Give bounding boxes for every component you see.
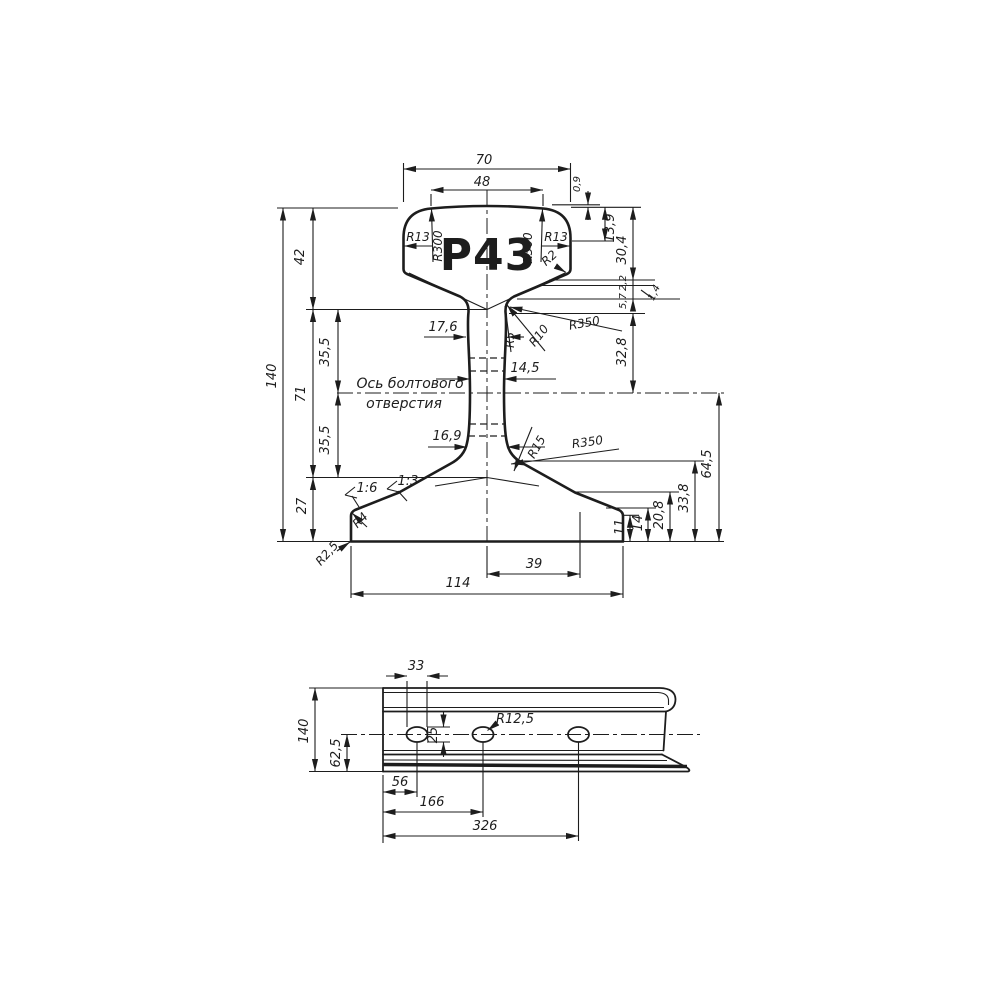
dim-label-33: 33: [408, 659, 425, 674]
bolt-hole-axis-note: Ось болтового отверстия: [356, 376, 463, 412]
dim-label-71: 71: [294, 386, 309, 403]
dim-label-20-8: 20,8: [652, 501, 667, 530]
rail-technical-drawing: 140 42 71 27 35,5 35,5 70 48: [0, 0, 1000, 1000]
radius-label-r350-upper: R350: [568, 313, 602, 332]
dim-label-56: 56: [392, 775, 409, 790]
drawing-sheet: 140 42 71 27 35,5 35,5 70 48: [0, 0, 1000, 1000]
dim-label-30-4: 30,4: [615, 236, 630, 265]
dim-label-114: 114: [446, 576, 471, 591]
dim-label-1-4: 1,4: [646, 283, 663, 302]
dim-label-140-side: 140: [297, 719, 312, 744]
bolt-holes: [341, 727, 700, 742]
dim-label-25: 25: [426, 727, 441, 744]
dim-label-326: 326: [473, 819, 498, 834]
dim-label-64-5: 64,5: [700, 450, 715, 479]
dim-label-14-5: 14,5: [511, 361, 540, 376]
dim-label-5-7: 5,7: [618, 292, 629, 309]
dim-label-39: 39: [526, 557, 543, 572]
dim-label-16-9: 16,9: [433, 429, 462, 444]
rail-type-label: Р43: [440, 230, 536, 281]
dim-label-0-9: 0,9: [572, 176, 583, 192]
rail-side-view: 33 140 62,5 25 R12,5 56 166 326: [297, 659, 700, 843]
axis-note-line2: отверстия: [366, 396, 442, 412]
dim-label-42: 42: [293, 249, 308, 266]
dim-label-62-5: 62,5: [329, 739, 344, 768]
dim-label-2-2: 2,2: [618, 275, 629, 291]
dim-label-17-6: 17,6: [429, 320, 458, 335]
dim-label-48: 48: [474, 175, 491, 190]
radius-label-r350-lower: R350: [571, 433, 604, 451]
radius-label-r13-left: R13: [406, 230, 430, 244]
radius-label-r13-right: R13: [544, 230, 568, 244]
slope-callouts: 1:6 1:3: [345, 474, 418, 507]
radius-label-r10: R10: [526, 322, 552, 350]
dim-label-166: 166: [420, 795, 445, 810]
radius-label-r2: R2: [539, 247, 560, 268]
axis-note-line1: Ось болтового: [356, 376, 463, 392]
radius-label-r5: R5: [503, 332, 517, 348]
dim-label-35-5-bottom: 35,5: [318, 426, 333, 455]
slope-label-1-6: 1:6: [357, 481, 378, 496]
slope-label-1-3: 1:3: [398, 474, 419, 489]
foot-dimensions: 39 114: [351, 512, 623, 598]
lower-right-dimensions: 64,5 33,8 20,8 14 11: [516, 393, 724, 542]
dim-label-70: 70: [476, 153, 493, 168]
rail-cross-section: 140 42 71 27 35,5 35,5 70 48: [265, 153, 724, 598]
dim-label-r12-5: R12,5: [496, 712, 534, 727]
dim-label-140: 140: [265, 364, 280, 389]
dim-label-14: 14: [631, 515, 646, 532]
dim-label-35-5-top: 35,5: [318, 338, 333, 367]
dim-label-27: 27: [295, 497, 310, 514]
dim-label-11: 11: [613, 519, 628, 536]
radius-label-r2-5: R2,5: [313, 538, 342, 568]
dim-label-32-8: 32,8: [615, 338, 630, 367]
dim-label-33-8: 33,8: [677, 484, 692, 513]
